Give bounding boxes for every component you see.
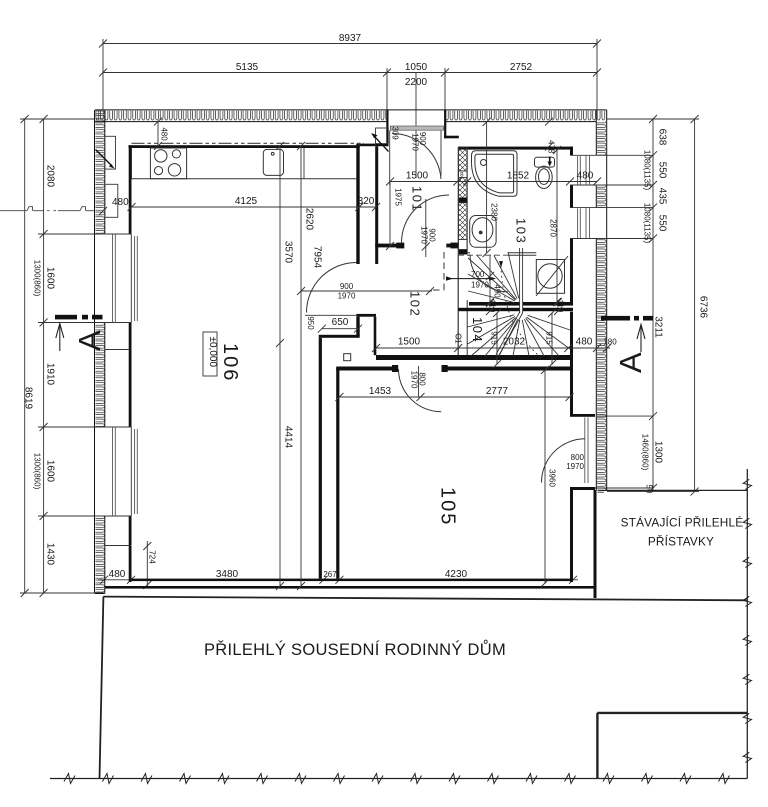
svg-text:1: 1 (454, 339, 463, 344)
svg-text:480: 480 (159, 127, 168, 141)
svg-text:106: 106 (219, 343, 241, 382)
svg-text:3570: 3570 (282, 241, 293, 264)
svg-text:267: 267 (323, 570, 337, 579)
svg-text:1430: 1430 (44, 543, 55, 566)
svg-text:915: 915 (489, 331, 498, 345)
svg-text:1970: 1970 (566, 462, 584, 471)
svg-text:103: 103 (514, 218, 529, 244)
svg-text:1050: 1050 (405, 62, 428, 73)
svg-text:110: 110 (487, 300, 496, 313)
svg-text:1970: 1970 (338, 292, 356, 301)
svg-text:50: 50 (644, 485, 653, 494)
svg-text:650: 650 (332, 317, 349, 328)
svg-text:2777: 2777 (486, 386, 509, 397)
svg-text:724: 724 (147, 550, 156, 564)
svg-text:8937: 8937 (339, 33, 362, 44)
svg-text:478: 478 (546, 140, 555, 154)
svg-text:1300(860): 1300(860) (32, 260, 41, 297)
svg-text:638: 638 (656, 129, 667, 146)
svg-text:1080(1135): 1080(1135) (642, 203, 651, 244)
svg-text:309: 309 (390, 126, 399, 140)
svg-text:2080: 2080 (44, 165, 55, 188)
svg-text:4125: 4125 (235, 196, 258, 207)
svg-text:7954: 7954 (311, 246, 322, 269)
svg-text:4230: 4230 (445, 569, 468, 580)
svg-text:1970: 1970 (419, 226, 428, 244)
svg-text:1852: 1852 (507, 171, 530, 182)
svg-text:105: 105 (437, 487, 459, 526)
svg-text:1300: 1300 (652, 441, 663, 464)
svg-text:101: 101 (410, 186, 425, 212)
svg-text:110: 110 (555, 300, 564, 313)
svg-text:320: 320 (358, 196, 375, 207)
svg-text:950: 950 (306, 316, 315, 330)
svg-text:±0,000: ±0,000 (207, 337, 218, 368)
svg-text:915: 915 (544, 331, 553, 345)
svg-text:1600: 1600 (44, 460, 55, 483)
svg-text:180: 180 (603, 338, 617, 347)
svg-text:3211: 3211 (652, 316, 663, 338)
svg-text:2032: 2032 (503, 337, 526, 348)
svg-text:2752: 2752 (510, 62, 533, 73)
svg-text:1970: 1970 (410, 371, 419, 389)
svg-text:1460(860): 1460(860) (640, 434, 649, 471)
svg-text:1300(860): 1300(860) (32, 453, 41, 490)
svg-text:PŘILEHLÝ SOUSEDNÍ RODINNÝ DŮM: PŘILEHLÝ SOUSEDNÍ RODINNÝ DŮM (204, 640, 506, 659)
svg-text:1600: 1600 (44, 267, 55, 290)
svg-text:480: 480 (576, 337, 593, 348)
svg-text:480: 480 (112, 197, 129, 208)
svg-text:550: 550 (656, 215, 667, 232)
svg-text:800: 800 (571, 453, 585, 462)
svg-text:3480: 3480 (216, 569, 239, 580)
svg-text:900: 900 (340, 282, 354, 291)
svg-text:102: 102 (408, 291, 423, 317)
svg-text:480: 480 (577, 171, 594, 182)
svg-text:1500: 1500 (398, 337, 421, 348)
svg-text:1500: 1500 (406, 171, 429, 182)
svg-text:2870: 2870 (548, 219, 557, 237)
svg-text:8619: 8619 (22, 387, 33, 410)
svg-text:4414: 4414 (282, 426, 293, 449)
svg-text:435: 435 (656, 188, 667, 205)
svg-text:PŘÍSTAVKY: PŘÍSTAVKY (648, 535, 714, 549)
svg-text:3960: 3960 (547, 469, 556, 487)
svg-text:STÁVAJÍCÍ PŘILEHLÉ: STÁVAJÍCÍ PŘILEHLÉ (621, 516, 744, 530)
svg-text:1970: 1970 (410, 133, 419, 151)
svg-text:480: 480 (109, 569, 126, 580)
svg-text:5135: 5135 (236, 62, 259, 73)
svg-text:2620: 2620 (303, 208, 314, 231)
svg-text:1080(1135): 1080(1135) (642, 150, 651, 191)
svg-text:104: 104 (470, 317, 485, 343)
svg-text:550: 550 (656, 162, 667, 179)
svg-text:1453: 1453 (369, 386, 392, 397)
svg-text:A: A (72, 330, 107, 351)
svg-text:1975: 1975 (393, 188, 402, 206)
svg-text:2380: 2380 (489, 203, 498, 221)
svg-text:A: A (613, 352, 648, 373)
svg-text:2200: 2200 (405, 77, 428, 88)
svg-text:1910: 1910 (44, 363, 55, 386)
svg-text:6736: 6736 (697, 296, 708, 319)
